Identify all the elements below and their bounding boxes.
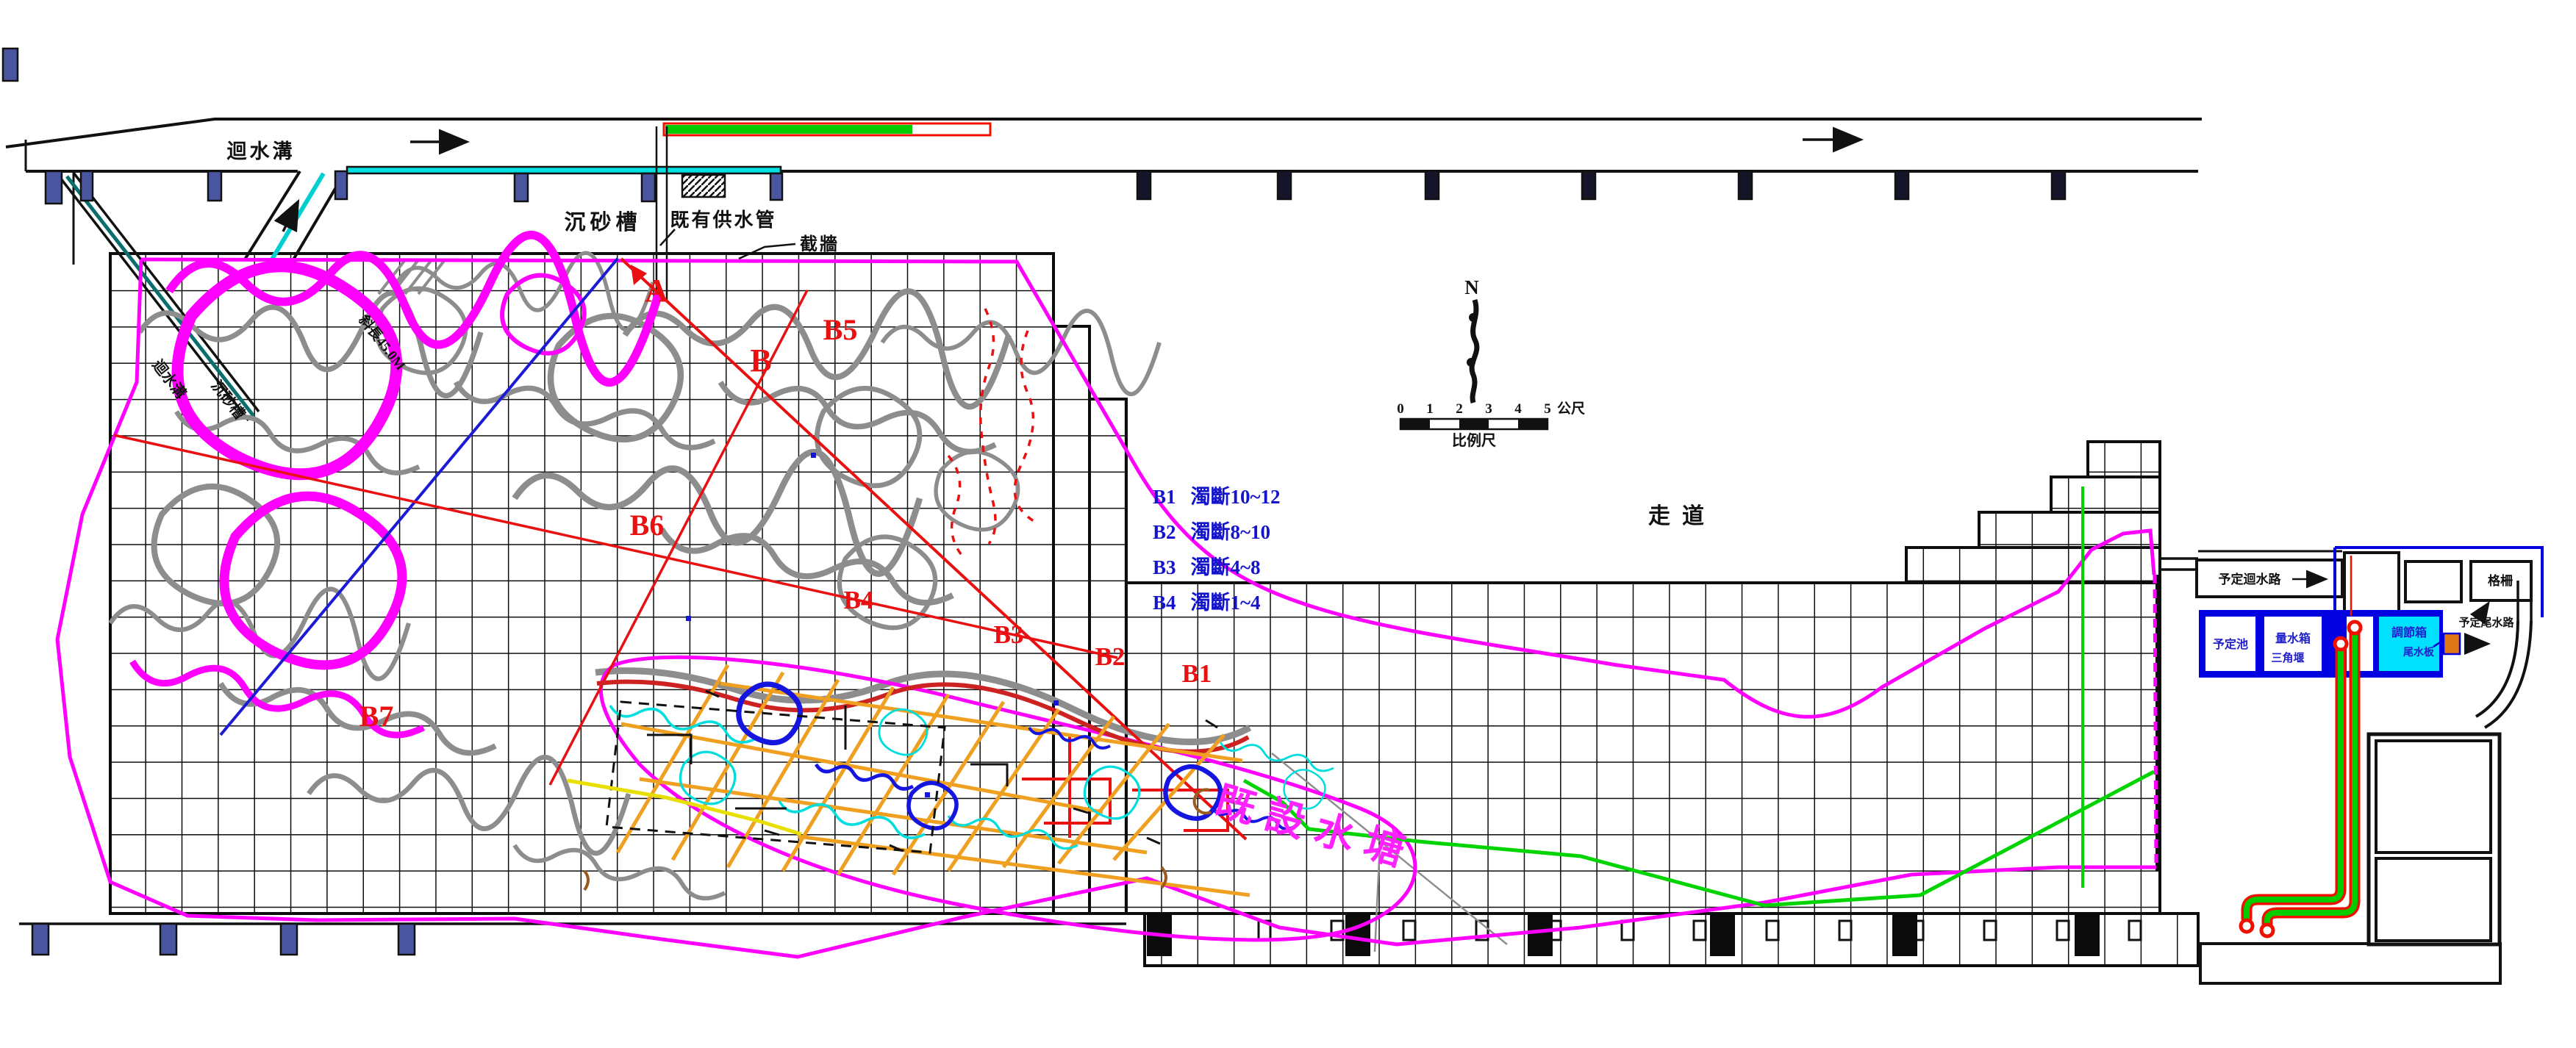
scale-unit: 公尺 [1557,401,1585,417]
zone-b: B [750,342,771,378]
measuring-tank-label: 量水箱 [2275,631,2311,645]
north-arrow: N [1464,276,1479,403]
north-label: N [1464,276,1479,298]
zone-a: A [645,273,668,309]
sand-trap-trough [347,167,781,173]
zone-b4: B4 [844,586,874,614]
screen-label: 格柵 [2488,573,2513,588]
hatched-block [682,175,725,197]
legend-row-2: B2濁斷8~10 [1153,521,1270,543]
scale-tick-1: 1 [1426,401,1434,417]
planned-pond-label: 予定池 [2213,637,2248,651]
cutoff-wall-label: 截牆 [800,234,840,254]
site-plan-drawing: N 0 1 2 3 4 5 公尺 比例尺 迴水溝 沉砂槽 既有供水管 截牆 迴水… [0,0,2576,1048]
zone-b1: B1 [1182,659,1212,688]
v-notch-weir-label: 三角堰 [2271,651,2304,664]
tailrace-arc [2476,621,2531,728]
top-boundary-line [6,119,2202,147]
planned-return-channel-label: 予定迴水路 [2219,572,2282,586]
tailwater-board-gate [2444,634,2460,654]
zone-b7: B7 [359,700,394,733]
legend-row-1: B1濁斷10~12 [1153,486,1281,508]
tailwater-board-label: 尾水板 [2403,646,2435,658]
zone-b2: B2 [1095,642,1126,671]
zone-b3: B3 [994,620,1024,649]
zone-b5: B5 [823,313,858,346]
return-ditch-label: 迴水溝 [227,140,296,162]
inclined-channel-water-line [271,173,323,262]
sand-trap-label: 沉砂槽 [564,210,641,234]
legend-row-4: B4濁斷1~4 [1153,592,1261,614]
scale-tick-3: 3 [1485,401,1492,417]
scale-tick-5: 5 [1544,401,1551,417]
walkway-label: 走道 [1648,504,1716,528]
scale-tick-4: 4 [1514,401,1522,417]
base-plate [2200,944,2500,983]
zone-b6: B6 [630,509,665,542]
site-plan-canvas: N 0 1 2 3 4 5 公尺 比例尺 迴水溝 沉砂槽 既有供水管 截牆 迴水… [0,0,2576,1048]
scale-caption: 比例尺 [1452,431,1496,449]
pipe-bar-green [665,125,912,134]
regulating-box [2379,617,2439,671]
legend-row-3: B3濁斷4~8 [1153,556,1261,578]
scale-bar: 0 1 2 3 4 5 公尺 比例尺 [1397,401,1585,449]
scale-tick-2: 2 [1456,401,1463,417]
supply-pipe-label: 既有供水管 [670,209,776,231]
top-wall-pillars [3,49,2065,204]
scale-tick-0: 0 [1397,401,1404,417]
regulating-box-label: 調節箱 [2391,625,2427,639]
planned-tailrace-label: 予定尾水路 [2458,616,2514,629]
